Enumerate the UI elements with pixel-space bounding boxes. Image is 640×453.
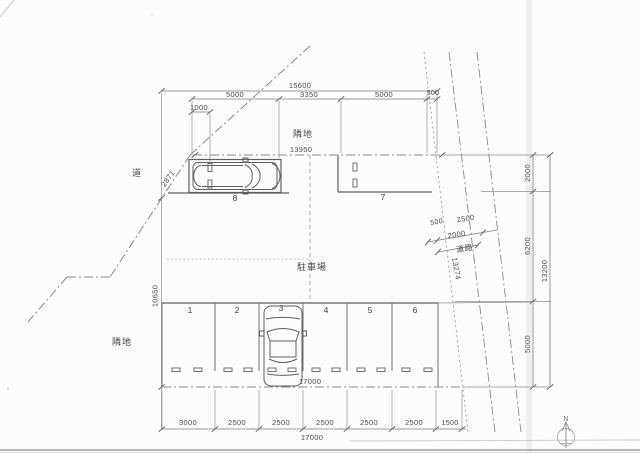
- west-height-dim: 10650: [151, 285, 160, 307]
- wheel-stop: [353, 179, 357, 187]
- wheelstop-offset-dim: 1000: [190, 103, 208, 112]
- road-seg2-dim: 2500: [456, 213, 475, 225]
- scanner-streak: [526, 0, 532, 453]
- north-boundary-dim: 13950: [290, 145, 312, 154]
- wheel-stop: [353, 163, 357, 171]
- scanned-site-plan-page: 道 2871 隣地 15600 5000 3350 5000 500 1000 …: [0, 0, 640, 453]
- parking-area-label: 駐車場: [297, 261, 327, 272]
- parking-row: [162, 302, 551, 387]
- space-7-number: 7: [381, 192, 386, 202]
- wheel-stop: [208, 164, 212, 172]
- road-left-label: 道: [132, 167, 142, 178]
- north-arrow: [558, 422, 575, 448]
- east-road-lines: [424, 52, 521, 432]
- road-right-label: 道路: [455, 242, 473, 255]
- space-8-number: 8: [233, 193, 238, 203]
- adjacent-left-label: 隣地: [112, 336, 132, 347]
- bottom-seg7-dim: 1500: [442, 420, 459, 427]
- bottom-total-dim: 17000: [301, 433, 323, 442]
- parking-space-7: [338, 155, 432, 192]
- bottom-seg5-dim: 2500: [360, 418, 378, 427]
- north-boundary-line: [192, 152, 551, 157]
- road-seg1-dim: 500: [430, 218, 444, 227]
- road-width-dim: 2000: [447, 229, 466, 241]
- space-1-number: 1: [188, 305, 193, 315]
- parking-space-8: [168, 158, 289, 194]
- bottom-seg3-dim: 2500: [272, 418, 290, 427]
- space-3-number: 3: [279, 303, 284, 313]
- top-seg2-dim: 3350: [300, 90, 318, 99]
- top-seg3-dim: 5000: [375, 90, 393, 99]
- space-5-number: 5: [368, 305, 373, 315]
- bottom-seg6-dim: 2500: [405, 418, 423, 427]
- road-length-dim: 13274: [450, 257, 463, 281]
- east-total-dim: 13200: [540, 260, 549, 282]
- adjacent-top-label: 隣地: [293, 128, 313, 139]
- site-plan-drawing: 道 2871 隣地 15600 5000 3350 5000 500 1000 …: [0, 0, 640, 453]
- north-label: N: [563, 416, 568, 423]
- space-4-number: 4: [324, 305, 329, 315]
- top-seg1-dim: 5000: [226, 90, 244, 99]
- east-dimension-chain: [455, 152, 553, 389]
- bottom-seg1-dim: 3000: [179, 418, 197, 427]
- bottom-seg2-dim: 2500: [228, 418, 246, 427]
- space-2-number: 2: [235, 305, 240, 315]
- car-top-view-3: [260, 306, 307, 386]
- space-6-number: 6: [413, 305, 418, 315]
- car-top-view-8: [193, 158, 280, 194]
- top-total-dim: 15600: [289, 81, 311, 90]
- bottom-seg4-dim: 2500: [316, 418, 334, 427]
